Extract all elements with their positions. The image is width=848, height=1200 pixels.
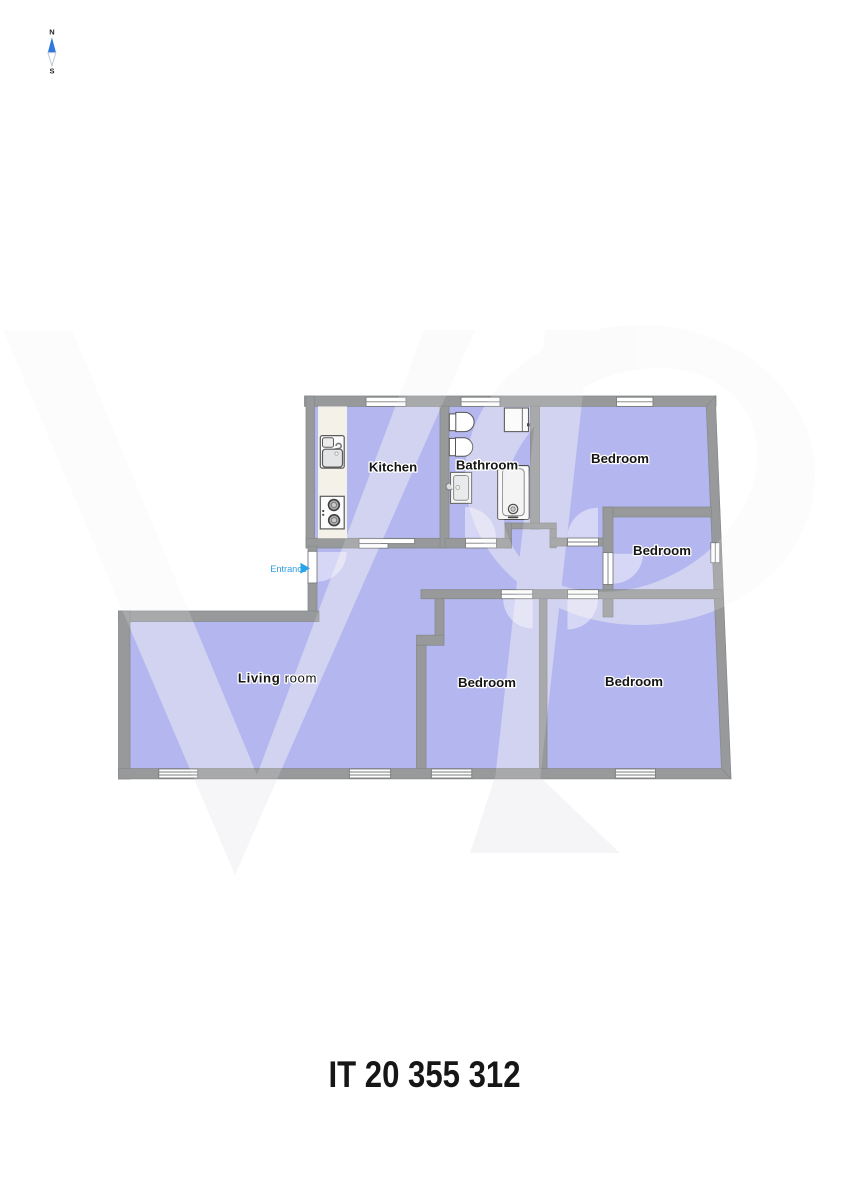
svg-text:Kitchen: Kitchen bbox=[369, 459, 417, 474]
svg-text:Bedroom: Bedroom bbox=[633, 543, 691, 558]
svg-text:Bedroom: Bedroom bbox=[591, 451, 649, 466]
svg-text:IT 20 355 312: IT 20 355 312 bbox=[329, 1054, 521, 1095]
svg-text:N: N bbox=[49, 28, 54, 37]
svg-text:Living room: Living room bbox=[238, 671, 317, 686]
svg-text:Bedroom: Bedroom bbox=[458, 675, 516, 690]
svg-text:Bathroom: Bathroom bbox=[456, 458, 518, 473]
svg-text:Bedroom: Bedroom bbox=[605, 674, 663, 689]
svg-text:S: S bbox=[49, 67, 54, 76]
